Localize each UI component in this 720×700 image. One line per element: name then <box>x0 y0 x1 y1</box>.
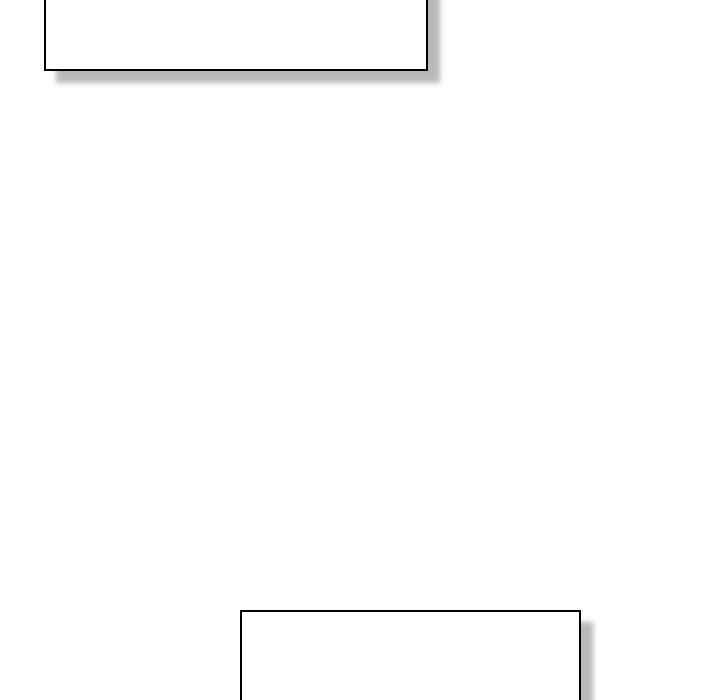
diagram-canvas <box>0 0 720 700</box>
diagram-node-box-top[interactable] <box>44 0 428 71</box>
diagram-node-box-bottom[interactable] <box>240 610 581 700</box>
